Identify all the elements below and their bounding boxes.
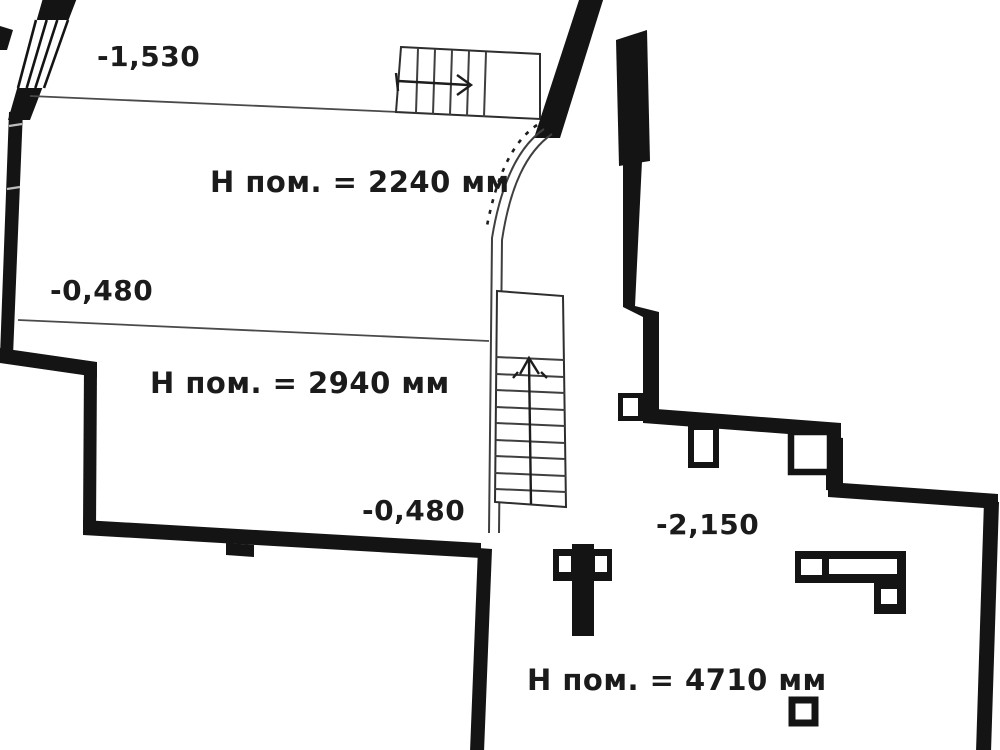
wall-junction-t [553, 544, 612, 636]
pier-below-wall-2 [791, 432, 830, 472]
staircase-main [495, 291, 566, 507]
floor-plan-svg: -1,530 Н пом. = 2240 мм -0,480 Н пом. = … [0, 0, 1000, 750]
exterior-wall-right [616, 30, 999, 750]
room-height-label: Н пом. = 2940 мм [150, 366, 450, 400]
annotations: -1,530 Н пом. = 2240 мм -0,480 Н пом. = … [50, 40, 827, 697]
wall-left-step [0, 348, 97, 529]
wall-center-vertical [470, 548, 492, 750]
floor-plan-page: -1,530 Н пом. = 2240 мм -0,480 Н пом. = … [0, 0, 1000, 750]
exterior-wall-top-left [0, 0, 77, 120]
exterior-wall-diagonal [534, 0, 604, 138]
elevation-label: -1,530 [97, 40, 200, 73]
wall-junction-l [795, 551, 906, 614]
room-height-label: Н пом. = 4710 мм [527, 663, 827, 697]
wall-notch [226, 543, 254, 557]
room-height-label: Н пом. = 2240 мм [210, 165, 510, 199]
staircase-upper [396, 47, 540, 119]
floor-edge-upper [30, 96, 399, 112]
elevation-label: -0,480 [50, 274, 153, 307]
exterior-wall-left [0, 110, 23, 356]
wall-fragment [0, 26, 13, 50]
pier-below-wall-1 [691, 427, 716, 465]
elevation-label: -0,480 [362, 494, 465, 527]
floor-edge-middle [18, 320, 489, 341]
column-bottom-right [792, 700, 815, 723]
elevation-label: -2,150 [656, 508, 759, 541]
pier-small-left [621, 396, 641, 419]
